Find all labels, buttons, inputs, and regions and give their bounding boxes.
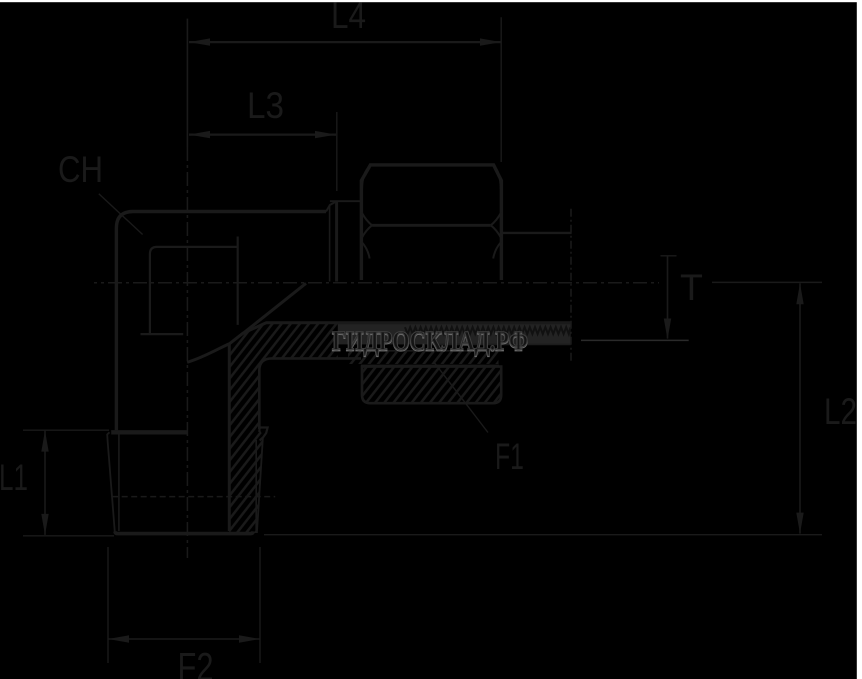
svg-text:CH: CH: [58, 148, 103, 190]
svg-text:F2: F2: [178, 646, 214, 679]
svg-text:L2: L2: [824, 390, 857, 432]
svg-text:F1: F1: [495, 435, 524, 477]
svg-text:L3: L3: [247, 84, 284, 126]
svg-text:T: T: [680, 266, 703, 308]
svg-text:L4: L4: [331, 0, 366, 36]
svg-text:L1: L1: [0, 456, 28, 498]
